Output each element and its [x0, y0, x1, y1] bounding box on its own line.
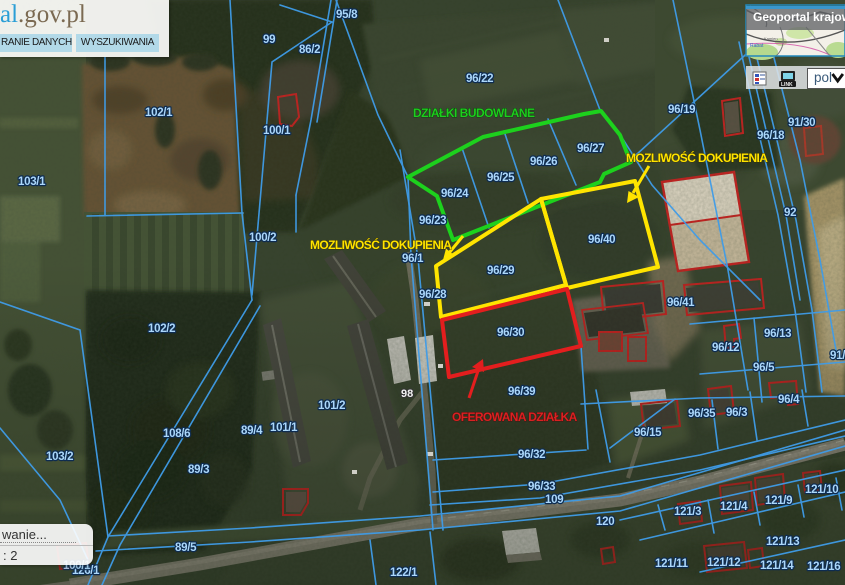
svg-text:96/3: 96/3: [726, 407, 747, 419]
svg-text:92: 92: [784, 207, 796, 219]
svg-text:102/1: 102/1: [145, 107, 173, 119]
svg-text:MOZLIWOŚĆ DOKUPIENIA: MOZLIWOŚĆ DOKUPIENIA: [310, 237, 452, 252]
svg-text:OFEROWANA DZIAŁKA: OFEROWANA DZIAŁKA: [452, 410, 578, 424]
svg-text:103/2: 103/2: [46, 451, 73, 463]
svg-text:108/6: 108/6: [163, 428, 190, 440]
svg-text:91/6: 91/6: [830, 350, 845, 362]
svg-text:91/30: 91/30: [788, 117, 815, 129]
svg-text:103/1: 103/1: [18, 176, 46, 188]
svg-text:96/19: 96/19: [668, 104, 695, 116]
svg-text:96/23: 96/23: [419, 215, 446, 227]
svg-text:96/22: 96/22: [466, 73, 493, 85]
svg-text:96/15: 96/15: [634, 427, 662, 439]
svg-text:96/13: 96/13: [764, 328, 791, 340]
svg-text:96/12: 96/12: [712, 342, 739, 354]
svg-text:DZIAŁKI BUDOWLANE: DZIAŁKI BUDOWLANE: [413, 106, 535, 120]
svg-text:96/24: 96/24: [441, 188, 469, 200]
svg-text:96/26: 96/26: [530, 156, 557, 168]
svg-text:121/13: 121/13: [766, 536, 799, 548]
svg-text:96/40: 96/40: [588, 234, 615, 246]
svg-text:121/11: 121/11: [655, 558, 689, 570]
svg-text:101/1: 101/1: [270, 422, 298, 434]
svg-text:96/41: 96/41: [667, 297, 695, 309]
svg-text:96/33: 96/33: [528, 481, 555, 493]
svg-text:120: 120: [596, 516, 614, 528]
svg-text:96/32: 96/32: [518, 449, 545, 461]
svg-text:89/5: 89/5: [175, 542, 197, 554]
svg-text:96/27: 96/27: [577, 143, 604, 155]
svg-text:100/2: 100/2: [249, 232, 276, 244]
svg-text:100/1: 100/1: [263, 125, 291, 137]
svg-text:121/16: 121/16: [807, 561, 840, 573]
svg-text:121/4: 121/4: [720, 501, 748, 513]
svg-text:98: 98: [401, 388, 413, 400]
svg-text:96/35: 96/35: [688, 408, 716, 420]
svg-text:121/14: 121/14: [760, 560, 794, 572]
svg-text:86/2: 86/2: [299, 44, 320, 56]
svg-text:121/12: 121/12: [707, 557, 740, 569]
svg-text:96/1: 96/1: [402, 253, 424, 265]
svg-text:96/5: 96/5: [753, 362, 775, 374]
svg-text:121/9: 121/9: [765, 495, 792, 507]
svg-text:96/18: 96/18: [757, 130, 785, 142]
svg-text:95/8: 95/8: [336, 9, 358, 21]
svg-text:96/29: 96/29: [487, 265, 514, 277]
svg-text:96/25: 96/25: [487, 172, 515, 184]
svg-text:MOZLIWOŚĆ DOKUPIENIA: MOZLIWOŚĆ DOKUPIENIA: [626, 150, 768, 165]
svg-text:89/3: 89/3: [188, 464, 209, 476]
svg-text:96/30: 96/30: [497, 327, 524, 339]
svg-text:96/4: 96/4: [778, 394, 800, 406]
svg-text:121/3: 121/3: [674, 506, 701, 518]
svg-text:102/2: 102/2: [148, 323, 175, 335]
svg-text:101/2: 101/2: [318, 400, 345, 412]
svg-text:109: 109: [545, 494, 563, 506]
svg-text:89/4: 89/4: [241, 425, 263, 437]
svg-text:99: 99: [263, 34, 275, 46]
svg-text:96/28: 96/28: [419, 289, 447, 301]
svg-text:122/1: 122/1: [390, 567, 418, 579]
svg-text:96/39: 96/39: [508, 386, 535, 398]
svg-text:121/10: 121/10: [805, 484, 838, 496]
